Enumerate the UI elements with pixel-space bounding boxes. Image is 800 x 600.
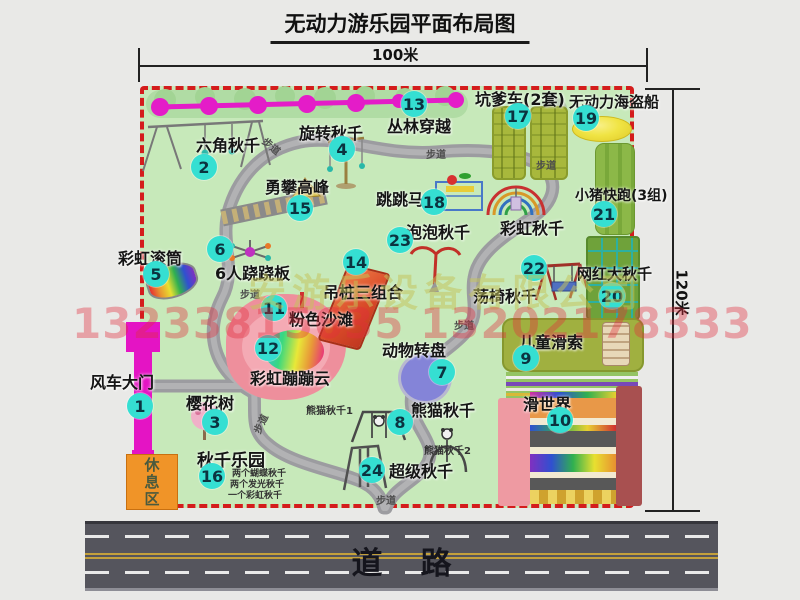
right-dimension-tick-bottom [645,510,700,512]
park-plan-image: 无动力游乐园平面布局图 100米 120米 [0,0,800,600]
marker-rotating-swing: 4 [329,136,355,162]
label-bubble-swing: 泡泡秋千 [406,219,470,243]
marker-panda-swing: 8 [387,409,413,435]
label-hex-swing: 六角秋千 [196,132,260,156]
rest-area-label: 休息区 [142,457,163,508]
marker-bubble-swing: 23 [387,227,413,253]
rest-area: 休息区 [126,454,178,510]
label-panda-swing-1: 熊猫秋千1 [306,402,353,417]
top-dimension-tick-left [138,48,140,82]
label-windmill-gate: 风车大门 [90,369,154,393]
road: 道路 [85,521,718,591]
marker-slide-world: 10 [547,407,573,433]
marker-animal-carousel: 7 [429,359,455,385]
page-title: 无动力游乐园平面布局图 [271,8,530,44]
path-label: 步道 [426,146,446,161]
right-dimension-tick-top [645,88,700,90]
path-label: 步道 [376,492,396,507]
phone-watermark: 13233815635 13202178333 [72,299,752,348]
marker-windmill-gate: 1 [127,393,153,419]
road-label: 道路 [85,538,718,583]
marker-super-swing: 24 [359,457,385,483]
marker-kids-zipline: 9 [513,345,539,371]
label-piggy-run: 小猪快跑(3组) [575,185,668,205]
marker-jungle-crossing: 13 [401,91,427,117]
swing-park-note-3: 一个彩虹秋千 [228,488,282,501]
marker-rainbow-roller: 5 [143,261,169,287]
marker-piggy-run: 21 [591,201,617,227]
marker-pirate-ship: 19 [573,105,599,131]
marker-jumping-horse: 18 [421,189,447,215]
label-panda-swing: 熊猫秋千 [411,397,475,421]
marker-swing-park: 16 [199,463,225,489]
top-dimension-line [138,65,648,67]
label-rainbow-swing: 彩虹秋千 [500,215,564,239]
marker-peak-climb: 15 [287,195,313,221]
label-rainbow-cloud: 彩虹蹦蹦云 [250,365,330,389]
label-jumping-horse: 跳跳马 [376,186,424,210]
marker-seesaw: 6 [207,236,233,262]
width-dimension-label: 100米 [372,44,418,65]
marker-pit-car: 17 [505,103,531,129]
label-jungle-crossing: 丛林穿越 [387,113,451,137]
path-label: 步道 [536,157,556,172]
slide-world-red-strip [616,386,642,506]
label-panda-swing-2: 熊猫秋千2 [424,442,471,457]
marker-cherry-tree: 3 [202,409,228,435]
top-dimension-tick-right [646,48,648,82]
label-super-swing: 超级秋千 [389,458,453,482]
marker-hex-swing: 2 [191,154,217,180]
